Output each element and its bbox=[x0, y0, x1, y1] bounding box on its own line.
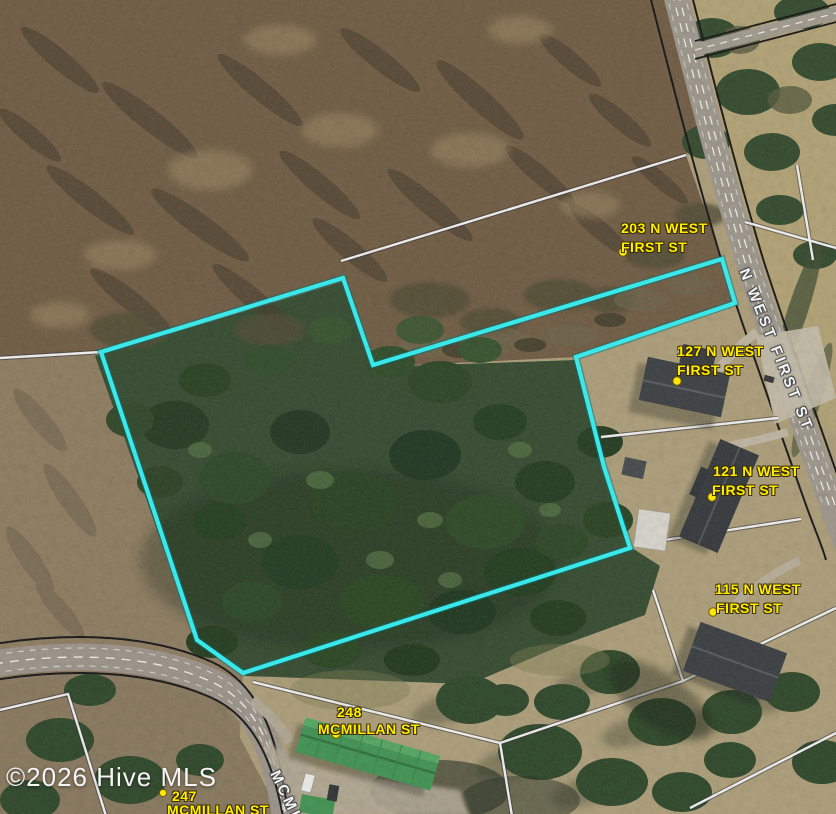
parcel-label-203-line1: 203 N WEST bbox=[621, 221, 708, 235]
parcel-label-248-line2: MCMILLAN ST bbox=[318, 722, 420, 736]
parcel-label-247-line2: MCMILLAN ST bbox=[167, 803, 269, 814]
parcel-label-203-line2: FIRST ST bbox=[621, 240, 687, 254]
parcel-label-127-line1: 127 N WEST bbox=[677, 344, 764, 358]
parcel-label-127-line2: FIRST ST bbox=[677, 363, 743, 377]
grain-overlay-light bbox=[0, 0, 836, 814]
aerial-map: 203 N WEST FIRST ST 127 N WEST FIRST ST … bbox=[0, 0, 836, 814]
parcel-label-121-line1: 121 N WEST bbox=[713, 464, 800, 478]
parcel-label-121-line2: FIRST ST bbox=[712, 483, 778, 497]
aerial-imagery bbox=[0, 0, 836, 814]
mls-watermark: ©2026 Hive MLS bbox=[6, 762, 217, 793]
parcel-label-248-line1: 248 bbox=[337, 705, 362, 719]
parcel-point-marker bbox=[673, 377, 681, 385]
parcel-label-115-line2: FIRST ST bbox=[716, 601, 782, 615]
parcel-label-115-line1: 115 N WEST bbox=[715, 582, 801, 596]
